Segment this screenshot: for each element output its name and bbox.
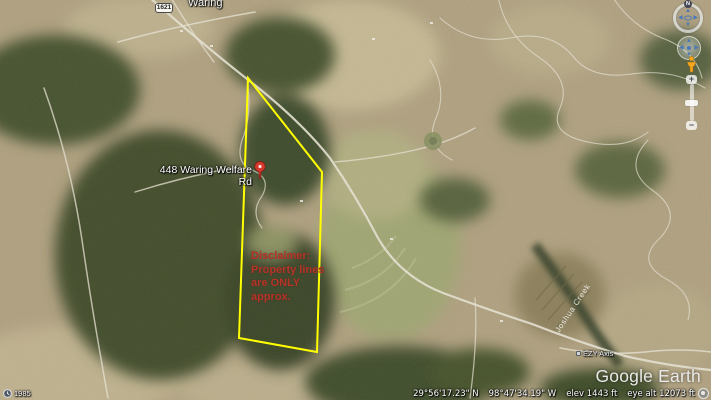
disclaimer-line: Disclaimer: <box>251 250 324 264</box>
place-label-text: EZY Axis <box>583 349 613 358</box>
road-shield-1621: 1621 <box>155 3 173 13</box>
status-elevation: elev 1443 ft <box>566 389 617 399</box>
move-left-arrow-icon[interactable]: ◀ <box>679 45 684 51</box>
look-right-arrow-icon[interactable]: ▶ <box>693 15 698 21</box>
move-right-arrow-icon[interactable]: ▶ <box>694 45 699 51</box>
satellite-imagery[interactable] <box>0 0 711 400</box>
status-eye-altitude: eye alt 12073 ft <box>627 389 695 399</box>
google-earth-viewport: 1621 Waring 448 Waring Welfare Rd Discla… <box>0 0 711 400</box>
historical-year: 1985 <box>14 389 31 398</box>
move-center-icon <box>687 46 691 50</box>
place-label-ezy-axis: EZY Axis <box>576 349 613 358</box>
placemark-label[interactable]: 448 Waring Welfare Rd <box>146 164 252 188</box>
zoom-slider-handle[interactable] <box>685 100 698 106</box>
zoom-in-button[interactable]: + <box>686 75 697 84</box>
disclaimer-annotation: Disclaimer: Property lines are ONLY appr… <box>251 250 324 304</box>
disclaimer-line: Property lines <box>251 264 324 278</box>
pushpin-icon[interactable] <box>253 160 267 180</box>
zoom-out-button[interactable]: − <box>686 121 697 130</box>
disclaimer-line: are ONLY <box>251 277 324 291</box>
status-latitude: 29°56'17.23" N <box>413 389 479 399</box>
google-earth-logo: Google Earth <box>595 366 701 387</box>
streaming-indicator-icon <box>698 388 709 399</box>
clock-icon <box>3 389 12 398</box>
north-indicator[interactable]: N <box>684 0 692 8</box>
place-marker-icon <box>576 351 581 356</box>
pegman-icon[interactable] <box>686 56 697 73</box>
look-joystick[interactable]: N ▲ ▼ ◀ ▶ <box>673 3 703 33</box>
status-bar: 29°56'17.23" N 98°47'34.19" W elev 1443 … <box>413 389 695 399</box>
look-down-arrow-icon[interactable]: ▼ <box>685 22 691 28</box>
disclaimer-line: approx. <box>251 291 324 305</box>
historical-imagery-indicator[interactable]: 1985 <box>3 389 31 398</box>
look-up-arrow-icon[interactable]: ▲ <box>685 8 691 14</box>
eye-icon <box>684 16 692 21</box>
town-label-waring: Waring <box>188 0 222 9</box>
status-longitude: 98°47'34.19" W <box>489 389 557 399</box>
move-up-arrow-icon[interactable]: ▲ <box>686 38 692 44</box>
look-left-arrow-icon[interactable]: ◀ <box>678 15 683 21</box>
